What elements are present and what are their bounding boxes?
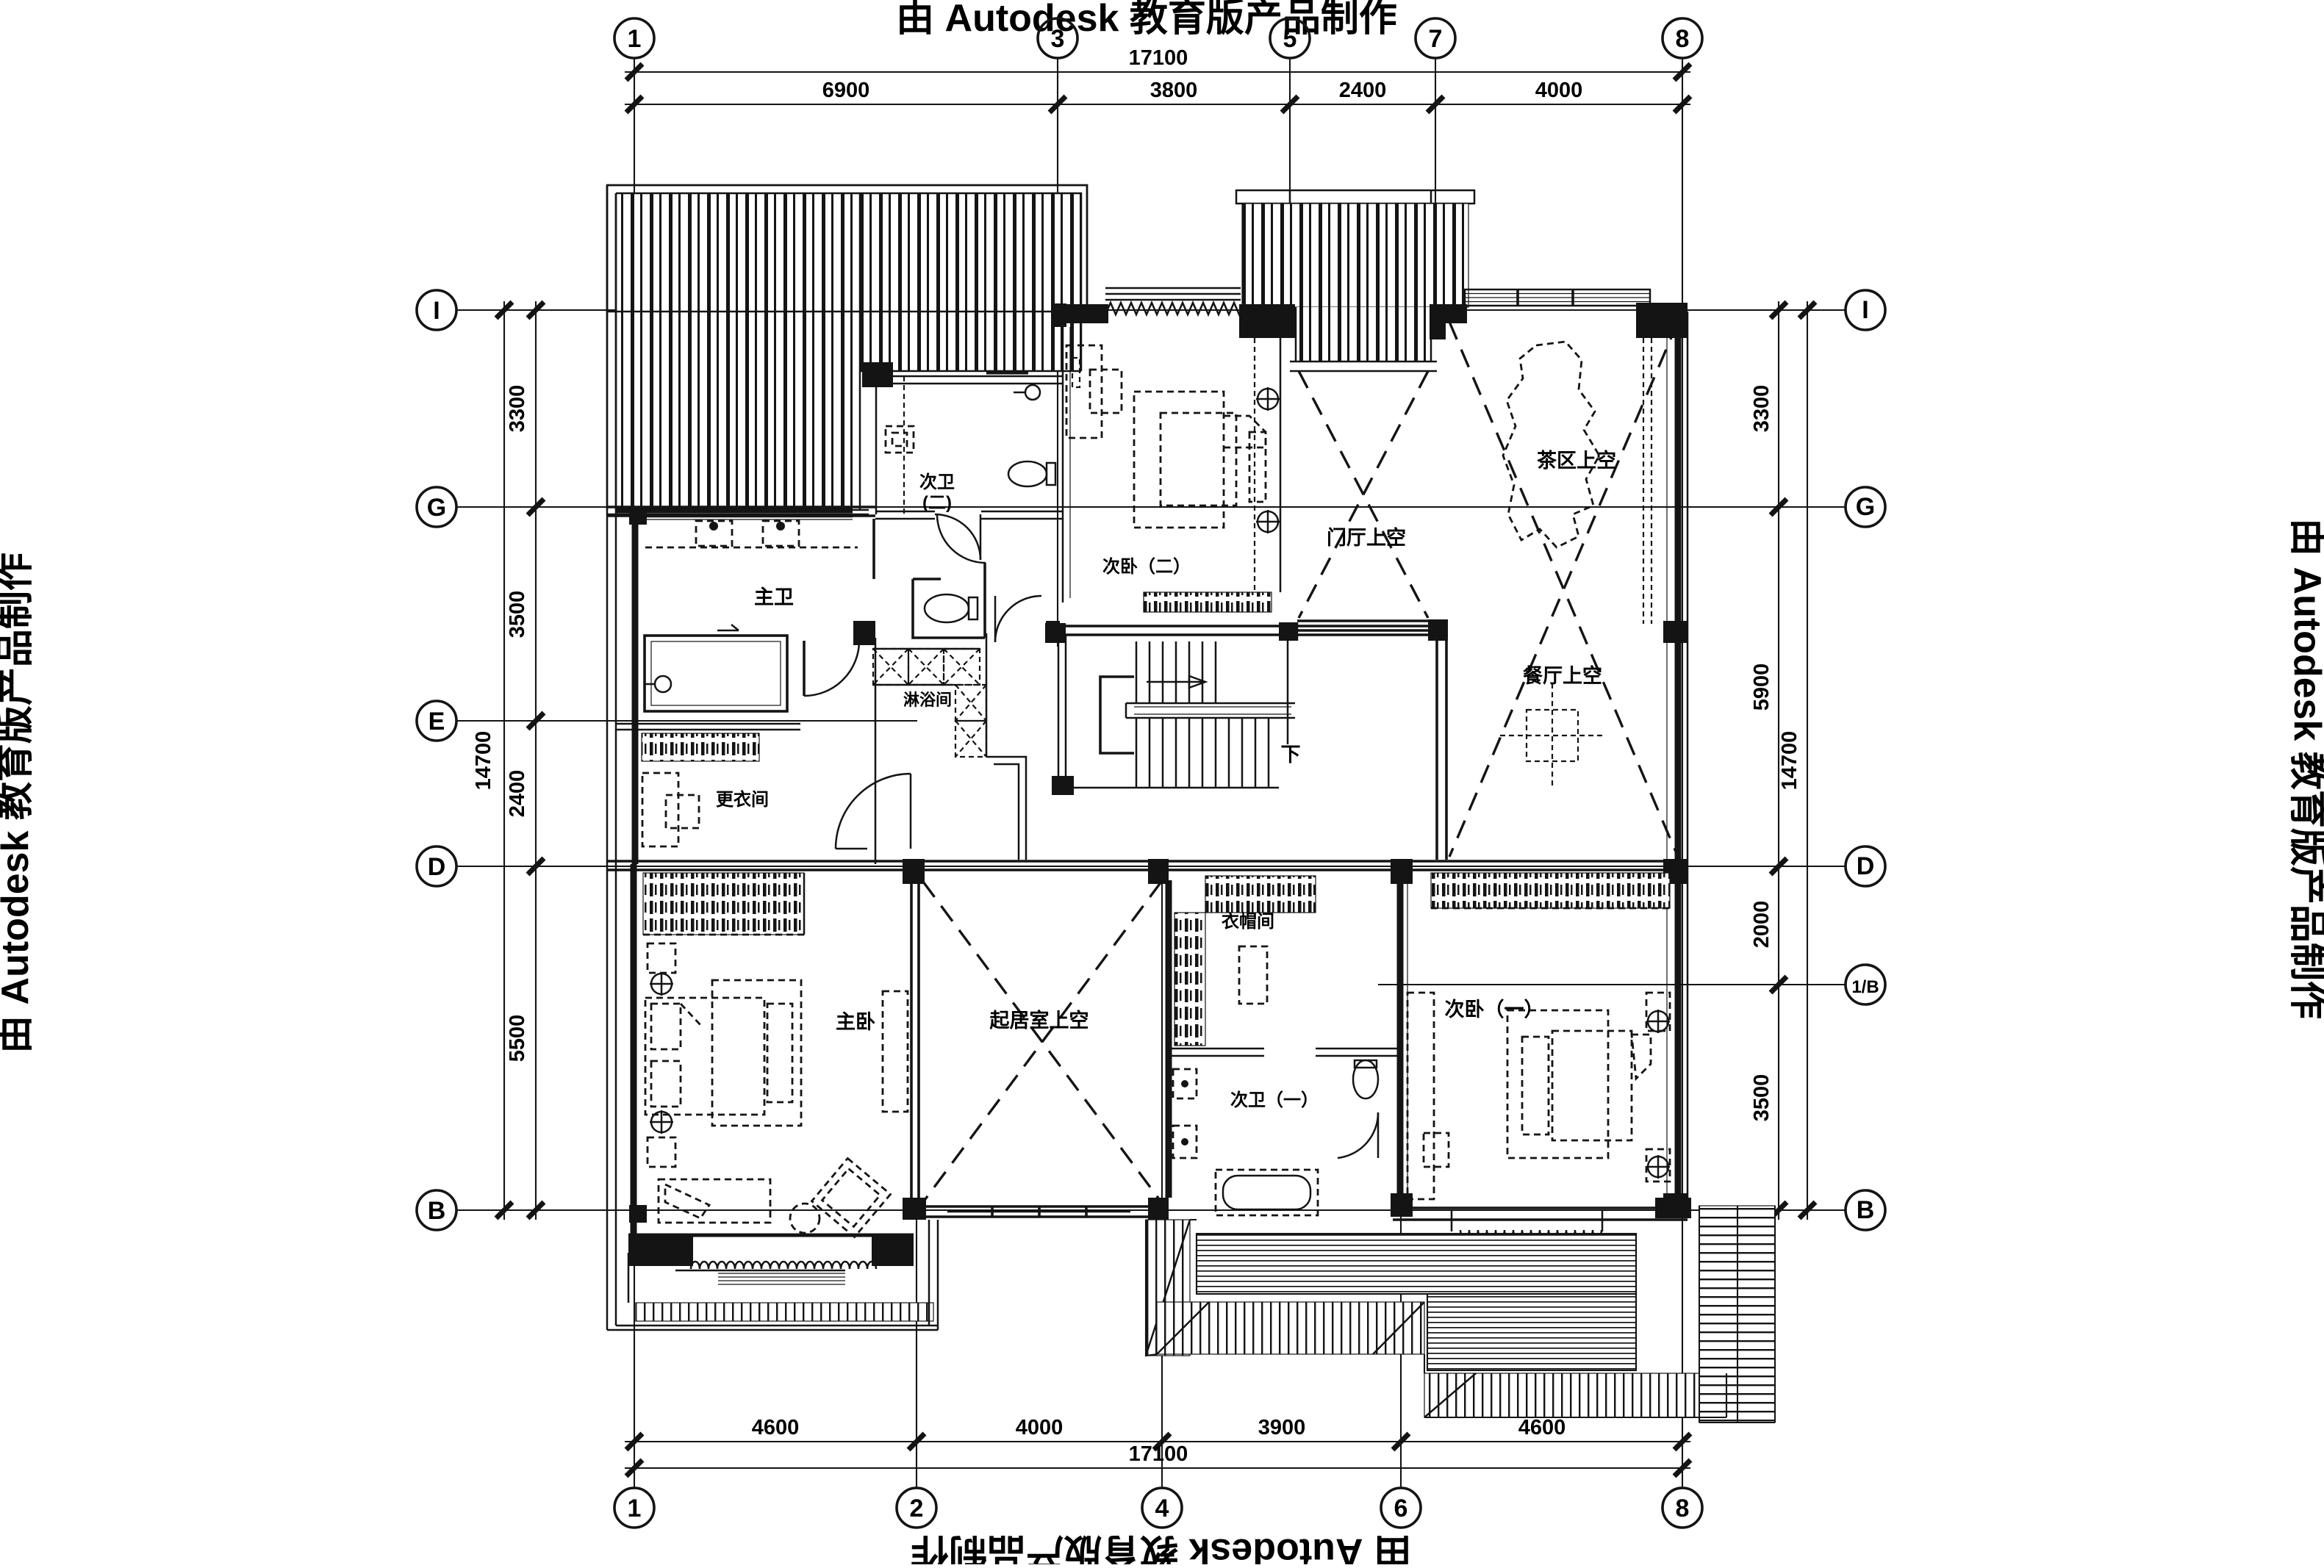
svg-text:17100: 17100 <box>1129 1442 1188 1466</box>
svg-text:I: I <box>1862 296 1868 324</box>
svg-text:3800: 3800 <box>1150 79 1198 102</box>
svg-text:茶区上空: 茶区上空 <box>1537 449 1616 472</box>
svg-text:D: D <box>1857 852 1875 880</box>
svg-text:衣帽间: 衣帽间 <box>1222 911 1274 932</box>
svg-text:6900: 6900 <box>822 79 870 102</box>
svg-text:次卫: 次卫 <box>919 472 955 492</box>
svg-text:4600: 4600 <box>1518 1416 1566 1439</box>
svg-text:6: 6 <box>1394 1495 1408 1522</box>
svg-text:3300: 3300 <box>506 385 529 433</box>
svg-text:由 Autodesk 教育版产品制作: 由 Autodesk 教育版产品制作 <box>2286 518 2324 1019</box>
svg-text:4600: 4600 <box>752 1416 800 1439</box>
svg-text:G: G <box>427 494 446 522</box>
svg-text:3: 3 <box>1051 25 1065 53</box>
svg-text:2400: 2400 <box>506 770 529 818</box>
svg-text:主卫: 主卫 <box>754 586 794 608</box>
svg-text:D: D <box>428 853 446 881</box>
svg-text:由 Autodesk 教育版产品制作: 由 Autodesk 教育版产品制作 <box>896 0 1397 40</box>
svg-text:由 Autodesk 教育版产品制作: 由 Autodesk 教育版产品制作 <box>911 1531 1412 1564</box>
svg-text:5500: 5500 <box>506 1015 529 1062</box>
svg-text:8: 8 <box>1676 25 1690 53</box>
svg-text:1: 1 <box>628 1495 642 1522</box>
svg-text:餐厅上空: 餐厅上空 <box>1523 664 1602 687</box>
svg-text:2000: 2000 <box>1750 901 1774 949</box>
svg-text:起居室上空: 起居室上空 <box>990 1009 1089 1032</box>
svg-text:1: 1 <box>628 25 642 53</box>
svg-text:B: B <box>428 1197 446 1225</box>
svg-text:由 Autodesk 教育版产品制作: 由 Autodesk 教育版产品制作 <box>0 553 37 1054</box>
svg-text:5900: 5900 <box>1750 663 1774 711</box>
svg-text:次卧（二）: 次卧（二） <box>1102 557 1191 577</box>
svg-text:7: 7 <box>1429 25 1443 53</box>
svg-text:B: B <box>1857 1196 1875 1224</box>
svg-text:4: 4 <box>1155 1495 1169 1522</box>
svg-text:14700: 14700 <box>472 731 495 791</box>
svg-text:3500: 3500 <box>506 591 529 639</box>
svg-text:3900: 3900 <box>1258 1416 1306 1439</box>
svg-text:14700: 14700 <box>1778 731 1801 791</box>
svg-text:17100: 17100 <box>1129 46 1188 70</box>
svg-text:5: 5 <box>1283 25 1297 53</box>
svg-text:次卫（一）: 次卫（一） <box>1230 1090 1319 1110</box>
svg-text:G: G <box>1856 493 1875 521</box>
svg-text:门厅上空: 门厅上空 <box>1327 526 1406 549</box>
svg-text:2400: 2400 <box>1339 79 1387 102</box>
svg-text:(二): (二) <box>922 493 952 513</box>
svg-text:次卧（一）: 次卧（一） <box>1445 999 1544 1021</box>
svg-text:淋浴间: 淋浴间 <box>903 691 952 709</box>
svg-text:4000: 4000 <box>1016 1416 1064 1439</box>
svg-text:主卧: 主卧 <box>836 1011 875 1033</box>
svg-text:8: 8 <box>1676 1495 1690 1522</box>
svg-text:3300: 3300 <box>1750 385 1774 433</box>
svg-text:下: 下 <box>1281 744 1301 766</box>
svg-text:4000: 4000 <box>1535 79 1583 102</box>
svg-text:3500: 3500 <box>1750 1074 1774 1122</box>
svg-text:E: E <box>428 708 445 736</box>
svg-text:更衣间: 更衣间 <box>716 789 769 810</box>
svg-text:I: I <box>433 297 440 325</box>
svg-text:1/B: 1/B <box>1851 977 1879 997</box>
svg-text:2: 2 <box>910 1495 924 1522</box>
